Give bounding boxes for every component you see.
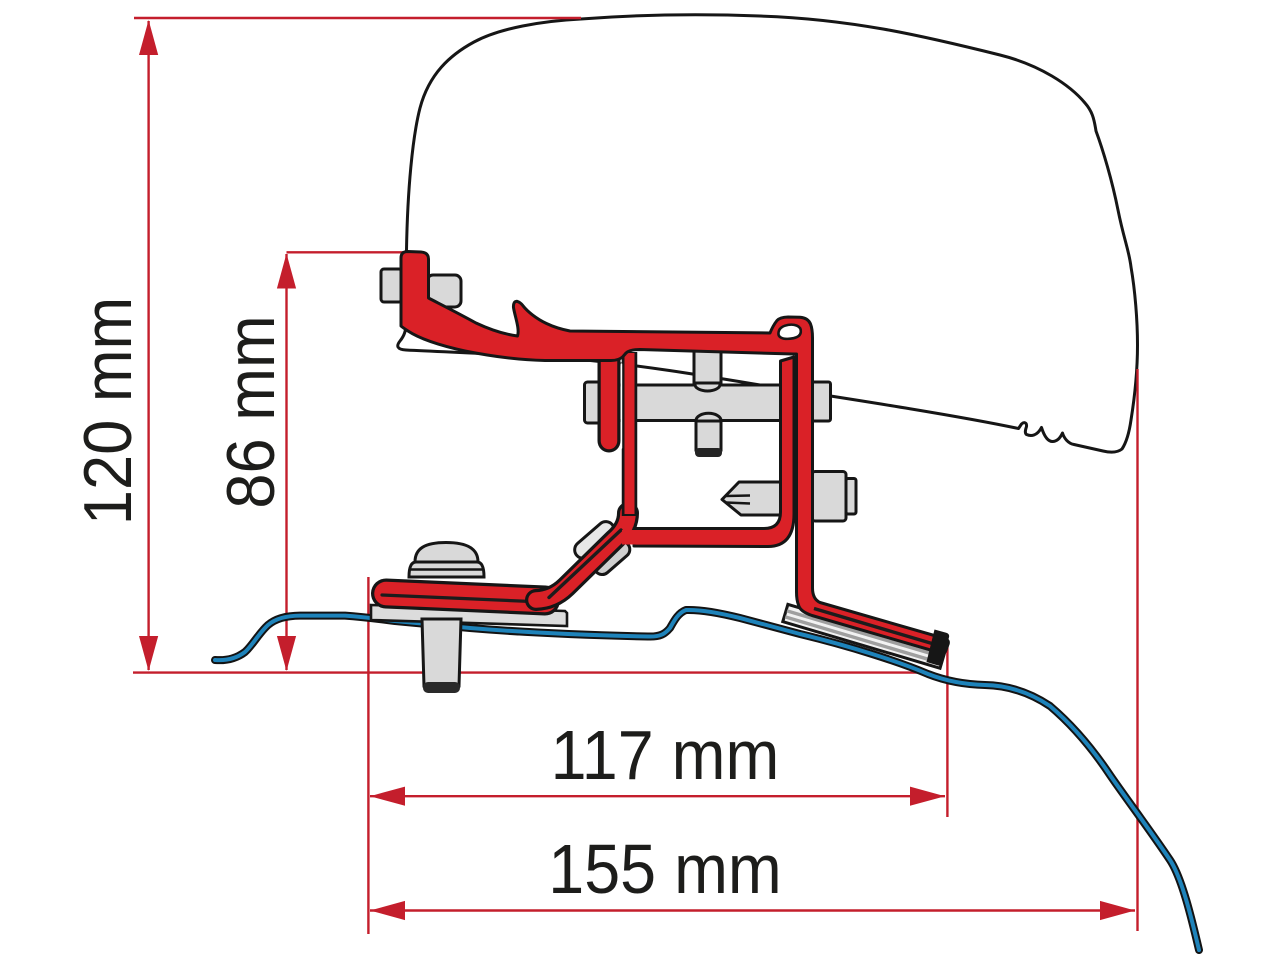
svg-text:86 mm: 86 mm	[213, 315, 289, 508]
svg-text:117 mm: 117 mm	[551, 717, 780, 795]
svg-text:155 mm: 155 mm	[548, 831, 781, 909]
svg-text:120 mm: 120 mm	[70, 297, 146, 525]
